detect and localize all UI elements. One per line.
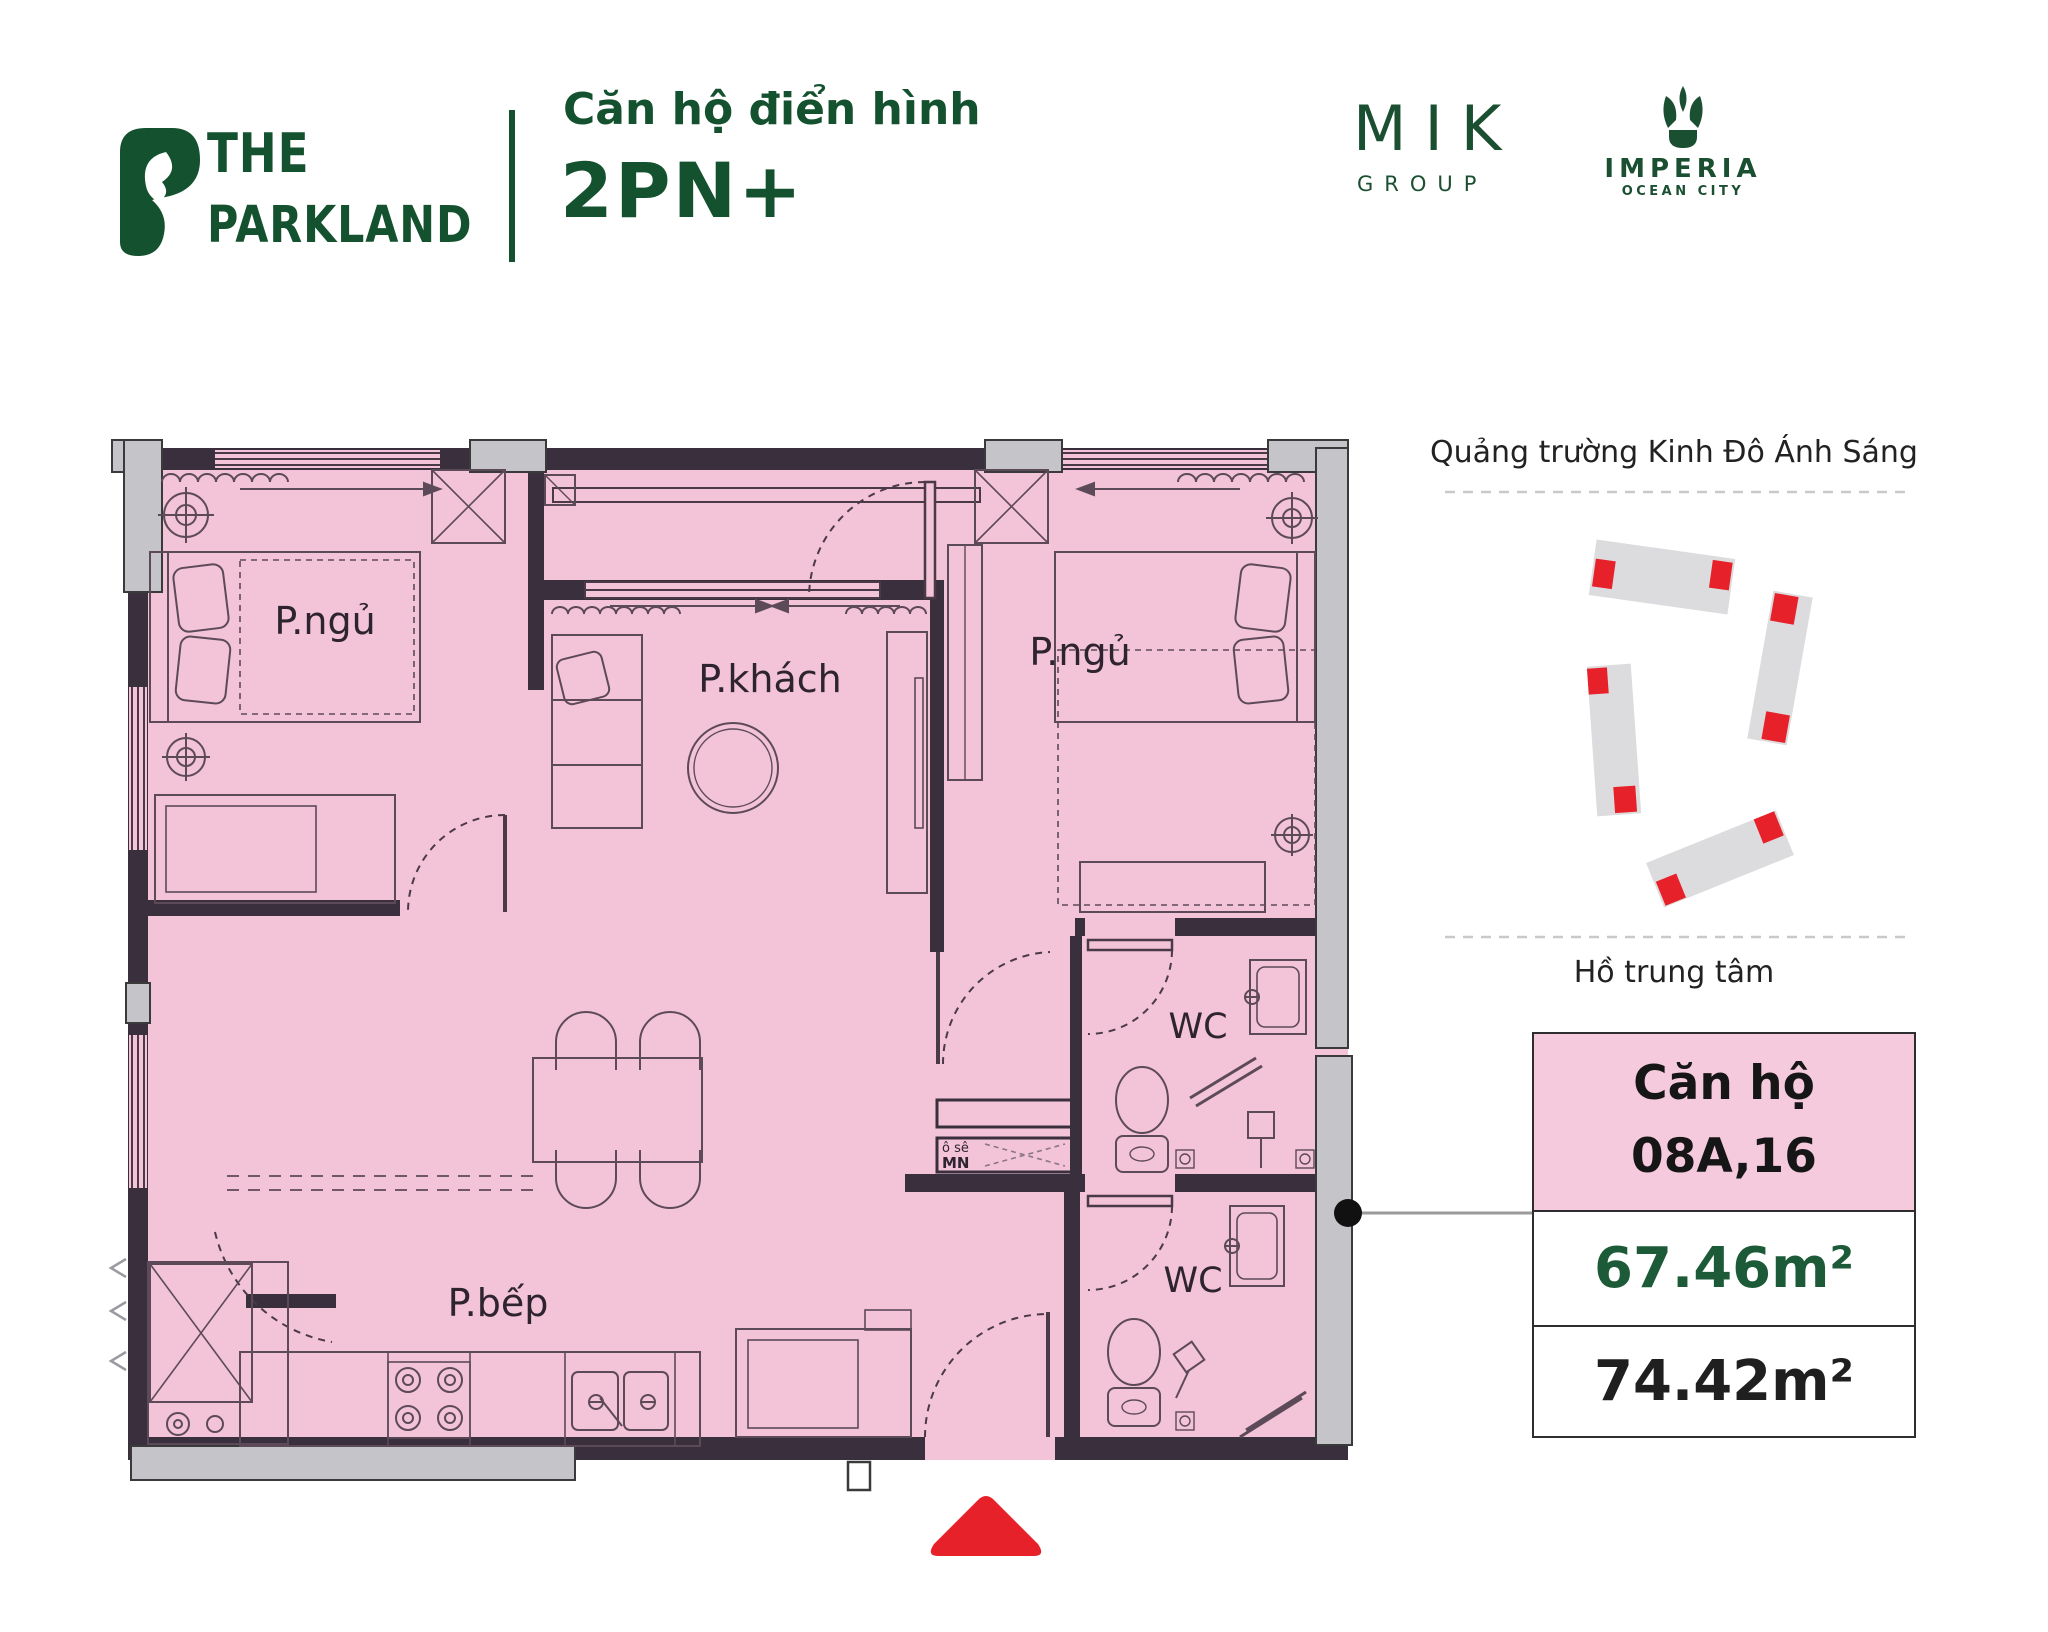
wc1-label: WC <box>1168 1007 1227 1047</box>
site-lake-label: Hồ trung tâm <box>1574 955 1775 990</box>
site-building-bottom <box>1646 811 1794 908</box>
vent-chevrons <box>111 1259 126 1370</box>
kitchen-label: P.bếp <box>448 1281 549 1325</box>
wc2-label: WC <box>1163 1261 1222 1301</box>
unit-label: Căn hộ <box>1534 1048 1914 1121</box>
site-building-right <box>1747 591 1812 746</box>
site-square-label: Quảng trường Kinh Đô Ánh Sáng <box>1430 434 1918 470</box>
unit-info-box: Căn hộ 08A,16 67.46m² 74.42m² <box>1532 1032 1916 1438</box>
unit-number: 08A,16 <box>1534 1121 1914 1194</box>
living-label: P.khách <box>698 657 841 701</box>
unit-info-header: Căn hộ 08A,16 <box>1534 1034 1914 1212</box>
unit-area-net: 67.46m² <box>1534 1212 1914 1327</box>
site-buildings <box>1587 540 1813 908</box>
bedroom1-label: P.ngủ <box>274 599 375 643</box>
unit-area-gross: 74.42m² <box>1534 1327 1914 1436</box>
site-building-top <box>1589 540 1735 615</box>
callout-dot <box>1334 1199 1362 1227</box>
door-stop <box>848 1462 870 1490</box>
site-building-left <box>1587 664 1641 817</box>
entrance-arrow <box>931 1496 1041 1556</box>
poster-page: THE PARKLAND Căn hộ điển hình 2PN+ MIK G… <box>0 0 2048 1632</box>
bedroom2-label: P.ngủ <box>1029 630 1130 674</box>
shaft-label-bottom: MN <box>942 1154 969 1172</box>
